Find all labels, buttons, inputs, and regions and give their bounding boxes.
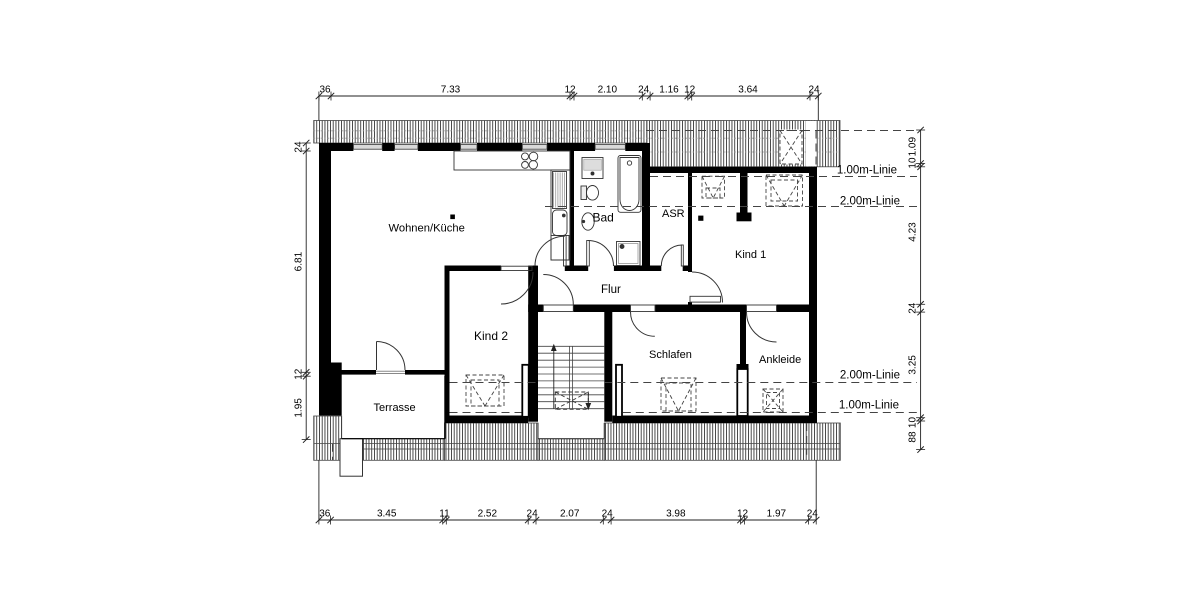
svg-text:1.97: 1.97 <box>767 509 787 520</box>
svg-text:2.52: 2.52 <box>478 509 498 520</box>
svg-text:Terrasse: Terrasse <box>374 402 416 414</box>
svg-text:Kind 2: Kind 2 <box>474 329 508 343</box>
svg-text:12: 12 <box>684 85 696 96</box>
svg-text:24: 24 <box>527 509 539 520</box>
svg-text:11: 11 <box>439 509 450 520</box>
svg-text:2.10: 2.10 <box>598 85 618 96</box>
svg-text:Bad: Bad <box>593 211 614 225</box>
svg-text:Ankleide: Ankleide <box>759 354 801 366</box>
svg-text:10: 10 <box>908 157 919 169</box>
svg-text:24: 24 <box>602 509 614 520</box>
svg-text:3.25: 3.25 <box>908 355 919 375</box>
svg-text:3.64: 3.64 <box>738 85 758 96</box>
svg-text:3.45: 3.45 <box>377 509 397 520</box>
svg-text:1.09: 1.09 <box>908 137 919 157</box>
svg-text:24: 24 <box>638 85 650 96</box>
svg-text:1.95: 1.95 <box>294 398 305 418</box>
svg-text:24: 24 <box>908 302 919 314</box>
svg-text:24: 24 <box>294 141 305 153</box>
svg-text:ASR: ASR <box>662 208 685 220</box>
svg-text:24: 24 <box>808 85 820 96</box>
svg-text:1.00m-Linie: 1.00m-Linie <box>839 400 899 412</box>
svg-text:36: 36 <box>319 509 331 520</box>
svg-text:2.00m-Linie: 2.00m-Linie <box>840 370 900 382</box>
svg-text:1.00m-Linie: 1.00m-Linie <box>837 165 897 177</box>
svg-text:Wohnen/Küche: Wohnen/Küche <box>389 223 465 235</box>
svg-text:36: 36 <box>319 85 331 96</box>
svg-text:10: 10 <box>908 417 919 429</box>
svg-text:12: 12 <box>564 85 576 96</box>
svg-text:1.16: 1.16 <box>659 85 679 96</box>
svg-text:88: 88 <box>908 431 919 443</box>
svg-text:6.81: 6.81 <box>294 251 305 271</box>
svg-text:Kind 1: Kind 1 <box>735 249 766 261</box>
svg-text:3.98: 3.98 <box>666 509 686 520</box>
svg-text:2.07: 2.07 <box>560 509 580 520</box>
svg-text:2.00m-Linie: 2.00m-Linie <box>840 196 900 208</box>
svg-text:Flur: Flur <box>601 284 621 296</box>
svg-text:12: 12 <box>737 509 749 520</box>
svg-text:7.33: 7.33 <box>441 85 461 96</box>
svg-text:12: 12 <box>294 368 305 380</box>
svg-text:Schlafen: Schlafen <box>649 349 692 361</box>
svg-text:24: 24 <box>807 509 819 520</box>
svg-text:4.23: 4.23 <box>908 222 919 242</box>
